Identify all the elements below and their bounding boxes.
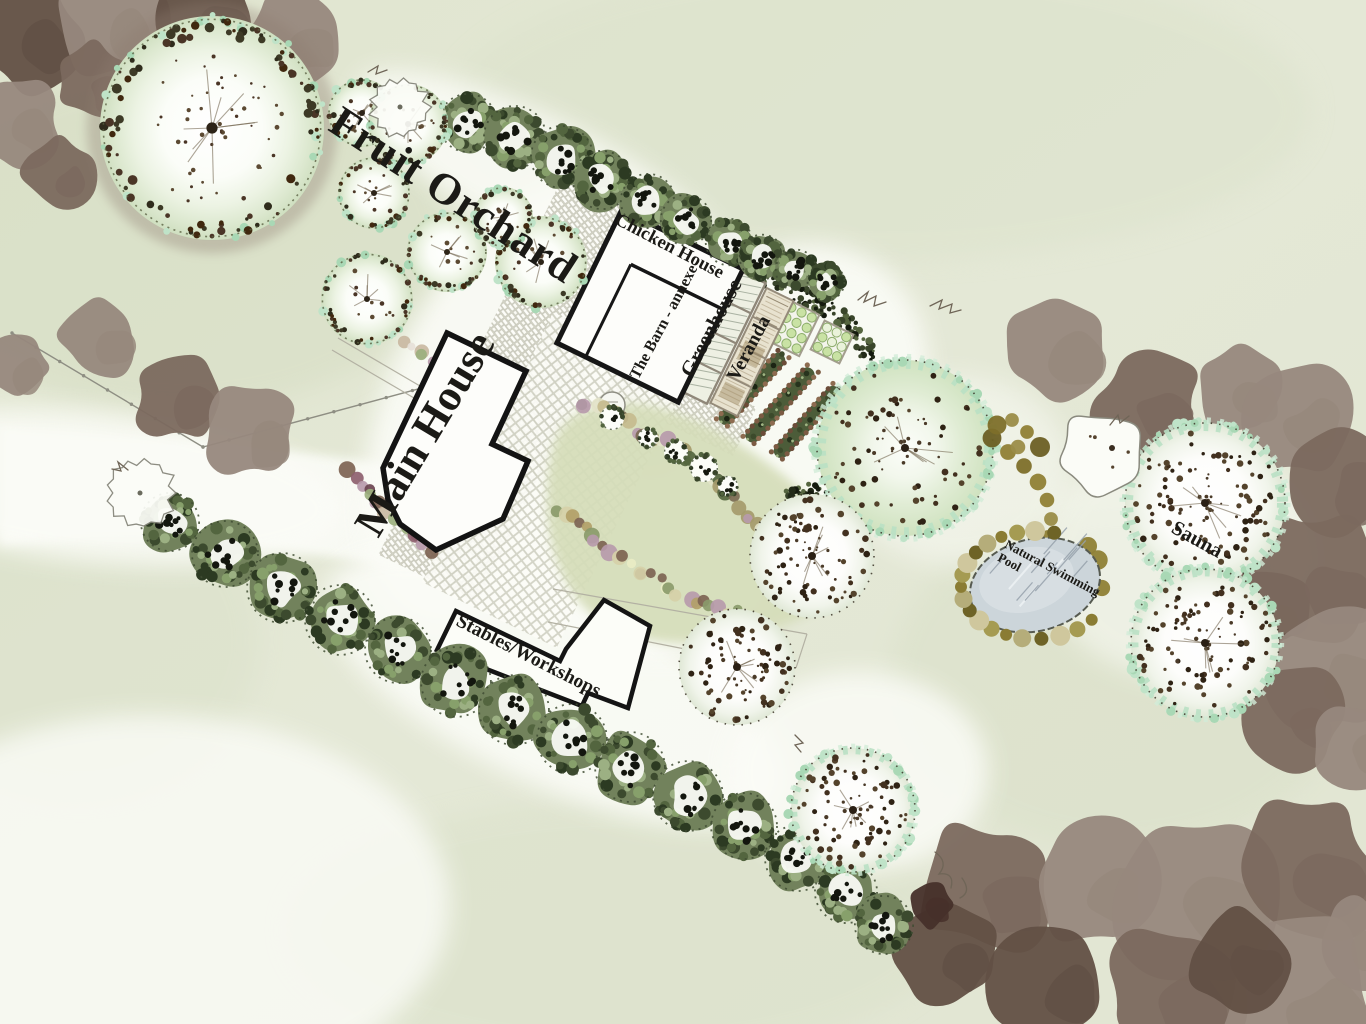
specimen-tree xyxy=(679,609,795,725)
brown-canopy-tree xyxy=(136,355,220,437)
site-plan-canvas: Fruit Orchard Chicken House The Barn - a… xyxy=(0,0,1366,1024)
border-shrub xyxy=(717,476,739,497)
orchard-tree xyxy=(87,3,338,254)
garden-site-plan: Fruit Orchard Chicken House The Barn - a… xyxy=(0,0,1366,1024)
brown-canopy-tree xyxy=(206,386,294,475)
specimen-tree xyxy=(750,494,874,618)
